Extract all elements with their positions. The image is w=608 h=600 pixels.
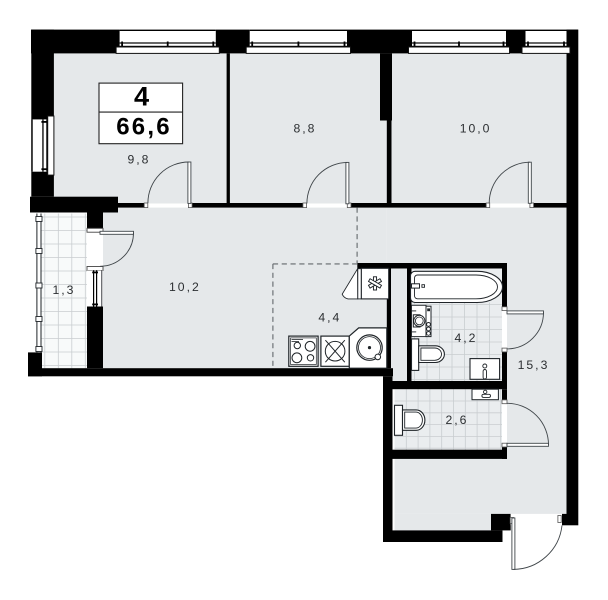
svg-text:4,2: 4,2 <box>455 331 478 345</box>
svg-text:66,6: 66,6 <box>116 114 172 141</box>
svg-text:9,8: 9,8 <box>128 153 151 167</box>
svg-text:4: 4 <box>134 81 149 112</box>
svg-text:1,3: 1,3 <box>53 283 76 297</box>
svg-text:8,8: 8,8 <box>294 122 317 136</box>
svg-text:4,4: 4,4 <box>318 310 341 324</box>
svg-text:2,6: 2,6 <box>446 413 469 427</box>
svg-text:15,3: 15,3 <box>518 358 550 372</box>
svg-text:10,2: 10,2 <box>169 280 201 294</box>
svg-text:10,0: 10,0 <box>460 122 492 136</box>
